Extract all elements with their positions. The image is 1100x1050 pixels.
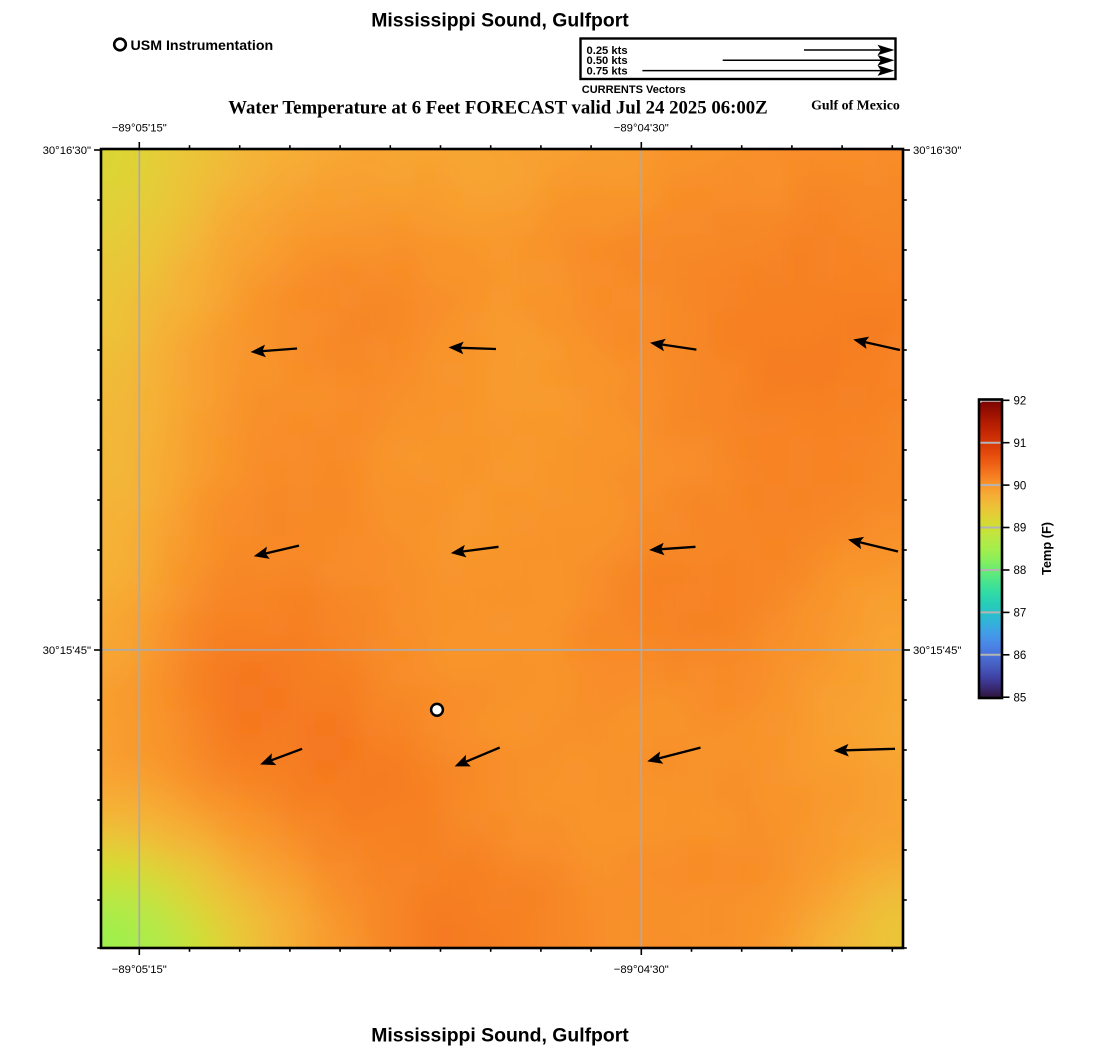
- svg-text:30°16'30": 30°16'30": [913, 145, 961, 157]
- svg-text:85: 85: [1014, 692, 1027, 704]
- svg-text:30°15'45": 30°15'45": [913, 645, 961, 657]
- svg-text:Mississippi Sound, Gulfport: Mississippi Sound, Gulfport: [371, 1025, 629, 1047]
- svg-text:90: 90: [1014, 480, 1027, 492]
- svg-text:−89°04'30": −89°04'30": [614, 964, 669, 976]
- svg-text:30°15'45": 30°15'45": [43, 645, 91, 657]
- svg-text:0.75 kts: 0.75 kts: [587, 66, 628, 78]
- svg-text:92: 92: [1014, 396, 1027, 408]
- svg-text:Water Temperature at 6 Feet FO: Water Temperature at 6 Feet FORECAST val…: [228, 98, 767, 119]
- svg-text:−89°05'15": −89°05'15": [112, 964, 167, 976]
- svg-text:89: 89: [1014, 523, 1027, 535]
- svg-text:86: 86: [1014, 650, 1027, 662]
- svg-text:−89°05'15": −89°05'15": [112, 123, 167, 135]
- svg-text:30°16'30": 30°16'30": [43, 145, 91, 157]
- svg-text:91: 91: [1014, 438, 1027, 450]
- svg-text:88: 88: [1014, 565, 1027, 577]
- svg-text:USM Instrumentation: USM Instrumentation: [131, 38, 274, 54]
- svg-text:CURRENTS Vectors: CURRENTS Vectors: [582, 84, 686, 96]
- svg-text:Temp (F): Temp (F): [1039, 522, 1054, 575]
- svg-text:−89°04'30": −89°04'30": [614, 123, 669, 135]
- svg-text:Mississippi Sound, Gulfport: Mississippi Sound, Gulfport: [371, 10, 629, 32]
- svg-text:87: 87: [1014, 608, 1027, 620]
- svg-text:Gulf of Mexico: Gulf of Mexico: [811, 99, 900, 114]
